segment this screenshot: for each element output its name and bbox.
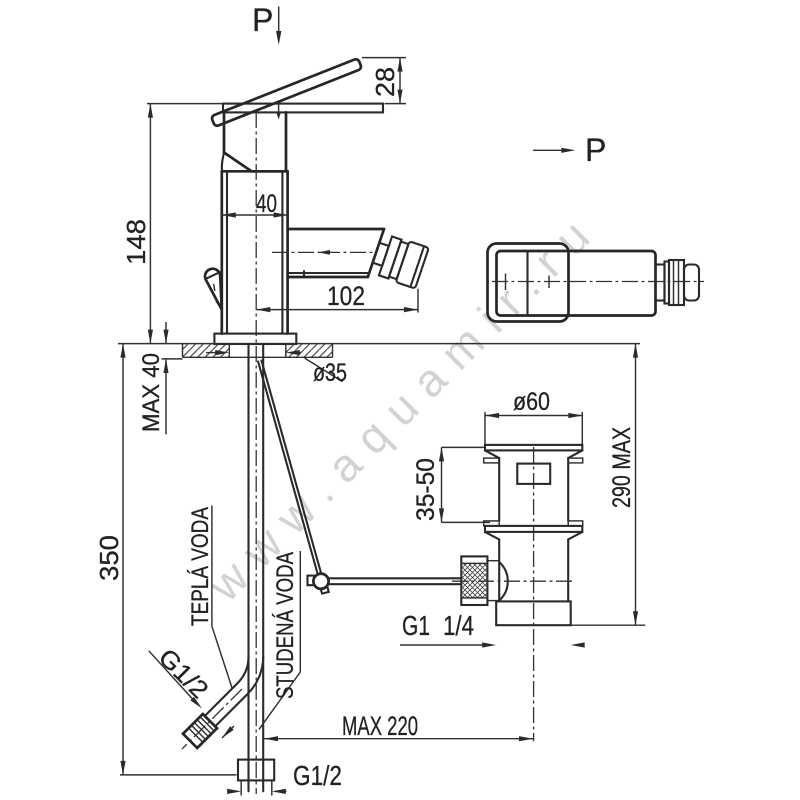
svg-text:G1/2: G1/2	[293, 760, 342, 791]
svg-text:28: 28	[370, 67, 400, 97]
svg-text:102: 102	[327, 281, 365, 311]
svg-text:35-50: 35-50	[412, 458, 440, 521]
svg-text:1/4: 1/4	[443, 610, 474, 641]
svg-text:P: P	[252, 2, 273, 38]
svg-text:40: 40	[256, 190, 277, 218]
svg-text:MAX 220: MAX 220	[342, 711, 418, 741]
svg-text:G1: G1	[402, 610, 430, 641]
svg-text:ø35: ø35	[313, 359, 347, 387]
svg-text:STUDENÁ VODA: STUDENÁ VODA	[272, 552, 299, 699]
svg-text:290 MAX: 290 MAX	[608, 427, 636, 508]
svg-text:P: P	[585, 132, 606, 168]
svg-text:ø60: ø60	[513, 388, 550, 416]
svg-text:TEPLÁ VODA: TEPLÁ VODA	[187, 507, 214, 626]
svg-text:350: 350	[94, 535, 124, 581]
svg-text:MAX 40: MAX 40	[138, 353, 165, 432]
svg-text:148: 148	[121, 219, 151, 265]
